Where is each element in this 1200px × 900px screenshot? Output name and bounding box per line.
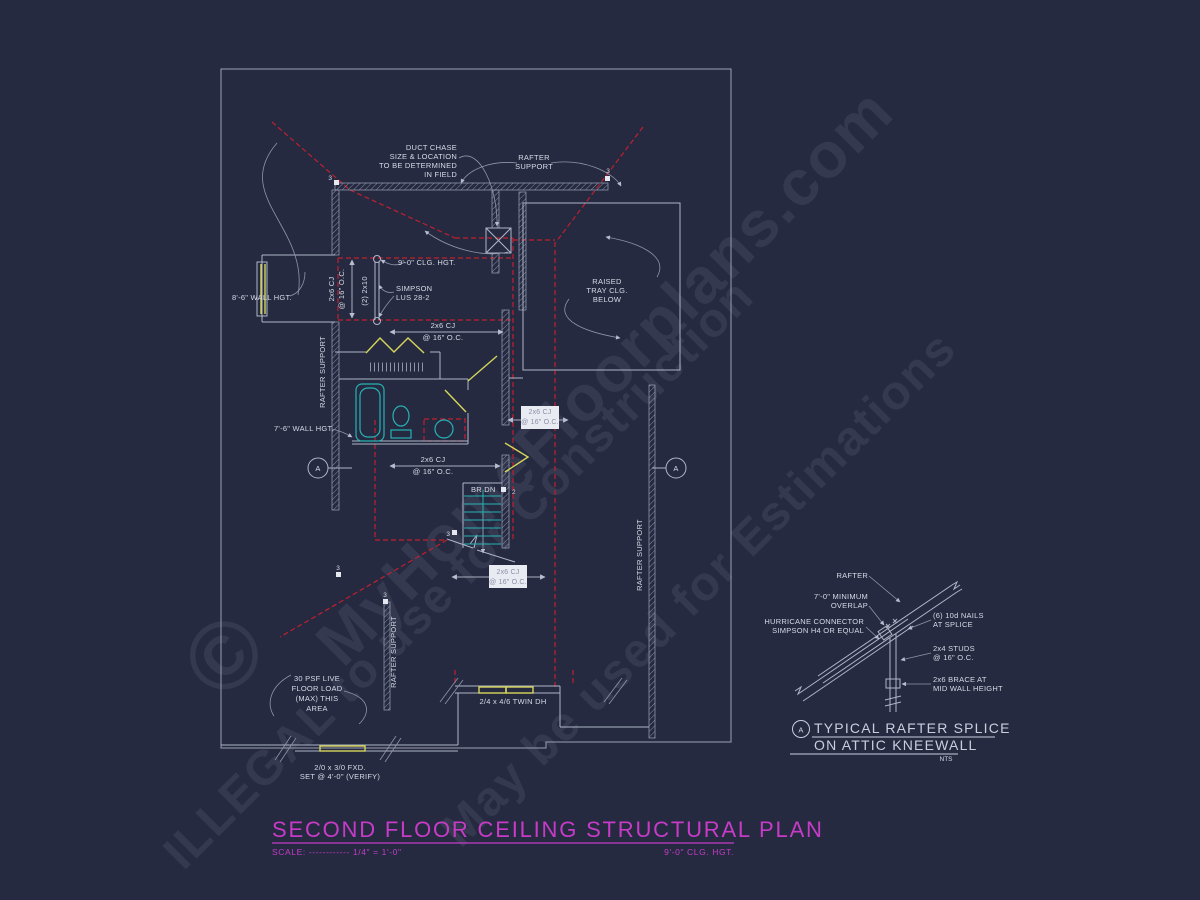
note-wall-hgt-86: 8'-6" WALL HGT. [232,293,292,302]
detail-note-overlap: 7'-0" MINIMUM [814,592,868,601]
svg-text:(MAX) THIS: (MAX) THIS [296,694,339,703]
svg-text:IN FIELD: IN FIELD [424,170,457,179]
section-letter-left: A [315,464,320,473]
svg-text:@ 16" O.C.: @ 16" O.C. [933,653,974,662]
svg-text:BELOW: BELOW [593,295,622,304]
note-simpson: SIMPSON [396,284,432,293]
marker-2: 2 [512,489,516,496]
svg-text:@ 16" O.C.: @ 16" O.C. [423,333,464,342]
svg-text:SET @ 4'-0" (VERIFY): SET @ 4'-0" (VERIFY) [300,772,381,781]
sheet-title: SECOND FLOOR CEILING STRUCTURAL PLAN [272,817,824,842]
blueprint-page: MyHomeFloorplans.com ILLEGAL to use for … [0,0,1200,900]
note-rafter-support-top: RAFTER [518,153,550,162]
detail-note-rafter: RAFTER [837,571,869,580]
marker-3-c: 3 [446,531,450,538]
svg-text:@ 16" O.C.: @ 16" O.C. [489,579,527,586]
svg-text:TO BE DETERMINED: TO BE DETERMINED [379,161,457,170]
note-raised-tray: RAISED [592,277,622,286]
dim-cj-top: 2x6 CJ [431,321,456,330]
title-scale: SCALE: ------------ 1/4" = 1'-0" [272,847,402,857]
marker-3-e: 3 [383,592,387,599]
detail-note-studs: 2x4 STUDS [933,644,975,653]
svg-text:LUS 28-2: LUS 28-2 [396,293,430,302]
section-letter-right: A [673,464,678,473]
marker-3-b: 3 [606,168,610,175]
detail-note-nails: (6) 10d NAILS [933,611,984,620]
detail-note-hurricane: HURRICANE CONNECTOR [764,617,864,626]
note-wall-hgt-76: 7'-6" WALL HGT. [274,424,334,433]
svg-text:SUPPORT: SUPPORT [515,162,553,171]
note-live-load: 30 PSF LIVE [294,674,340,683]
note-rafter-support-left: RAFTER SUPPORT [318,336,327,408]
detail-title-line1: TYPICAL RAFTER SPLICE [814,720,1011,736]
dim-cj-boxed-1: 2x6 CJ [529,409,552,416]
dim-cj-vert-1: 2x6 CJ [327,277,336,302]
svg-text:MID WALL HEIGHT: MID WALL HEIGHT [933,684,1003,693]
dim-cj-mid: 2x6 CJ [421,455,446,464]
note-br-dn: BR DN [471,485,496,494]
svg-text:AT SPLICE: AT SPLICE [933,620,973,629]
note-twin-dh: 2/4 x 4/6 TWIN DH [479,697,546,706]
note-rafter-support-right: RAFTER SUPPORT [635,519,644,591]
marker-3-d: 3 [336,565,340,572]
svg-text:SIMPSON H4 OR EQUAL: SIMPSON H4 OR EQUAL [772,626,864,635]
svg-text:@ 16" O.C.: @ 16" O.C. [337,269,346,310]
note-fxd: 2/0 x 3/0 FXD. [314,763,365,772]
svg-text:@ 16" O.C.: @ 16" O.C. [413,467,454,476]
dim-cj-boxed-2: 2x6 CJ [497,569,520,576]
marker-3-a: 3 [328,175,332,182]
detail-marker-letter: A [798,726,803,735]
detail-note-brace: 2x6 BRACE AT [933,675,987,684]
svg-text:OVERLAP: OVERLAP [831,601,868,610]
note-duct-chase: DUCT CHASE [406,143,457,152]
detail-scale: NTS [940,756,954,763]
svg-text:AREA: AREA [306,704,327,713]
note-strut: (2) 2x10 [360,276,369,306]
svg-text:SIZE & LOCATION: SIZE & LOCATION [390,152,457,161]
detail-title-line2: ON ATTIC KNEEWALL [814,737,978,753]
blueprint-canvas: MyHomeFloorplans.com ILLEGAL to use for … [0,0,1200,900]
svg-text:TRAY CLG.: TRAY CLG. [586,286,627,295]
svg-text:FLOOR LOAD: FLOOR LOAD [292,684,343,693]
note-rafter-support-bottom: RAFTER SUPPORT [389,616,398,688]
note-clg-hgt: 9'-0" CLG. HGT. [398,258,455,267]
svg-text:@ 16" O.C.: @ 16" O.C. [521,419,559,426]
title-clg-hgt: 9'-0" CLG. HGT. [664,847,734,857]
